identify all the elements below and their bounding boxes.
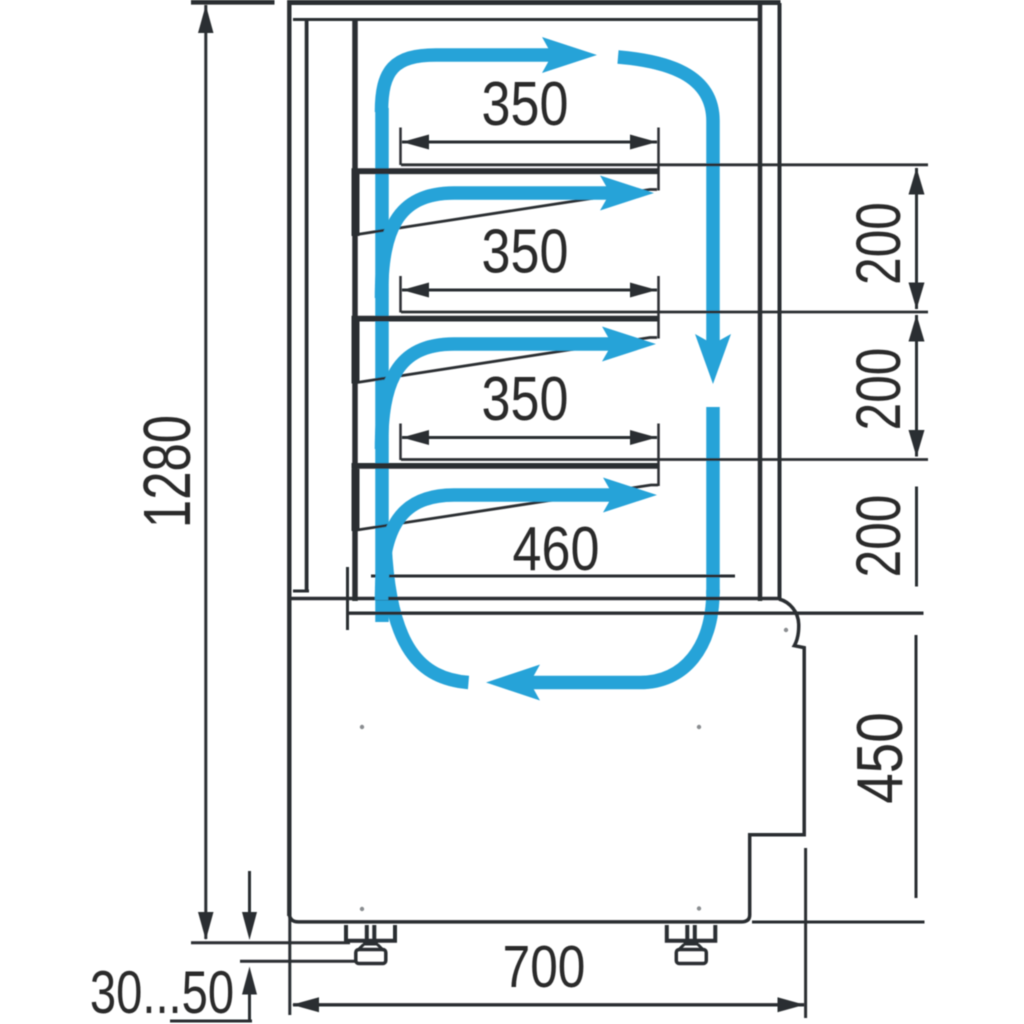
- svg-text:350: 350: [482, 70, 569, 139]
- svg-text:200: 200: [843, 495, 914, 578]
- svg-text:1280: 1280: [129, 415, 204, 528]
- svg-text:460: 460: [513, 515, 600, 584]
- svg-text:450: 450: [844, 712, 916, 803]
- svg-text:700: 700: [503, 934, 586, 1000]
- svg-text:350: 350: [482, 365, 569, 434]
- svg-text:350: 350: [482, 217, 569, 286]
- svg-text:200: 200: [843, 348, 914, 431]
- svg-text:30...50: 30...50: [90, 959, 234, 1024]
- svg-text:200: 200: [843, 202, 914, 285]
